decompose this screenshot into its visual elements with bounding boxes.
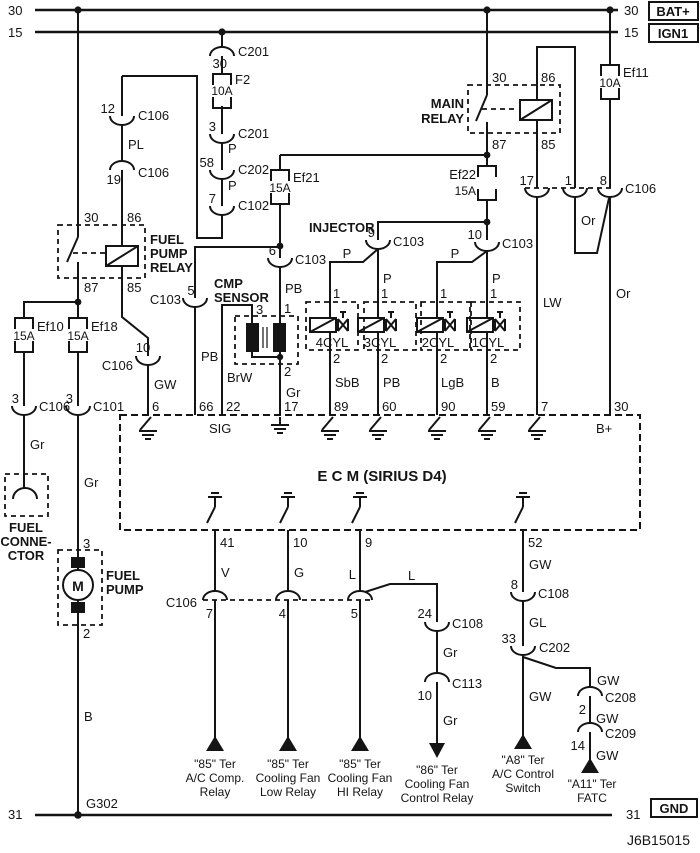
bus-15-label-right: 15 (624, 25, 638, 40)
pin-label: 2 (490, 351, 497, 366)
wire-label: P (228, 178, 237, 193)
wire-label: GW (154, 377, 177, 392)
connector-name: C202 (238, 162, 269, 177)
wire-label: GW (597, 673, 620, 688)
ecm-pin: 9 (365, 535, 372, 550)
ground-point-label: G302 (86, 796, 118, 811)
ecm-bplus-label: B+ (596, 421, 612, 436)
connector-pin: 8 (600, 173, 607, 188)
pin-label: 85 (127, 280, 141, 295)
pin-label: 2 (284, 364, 291, 379)
pin-label: 30 (84, 210, 98, 225)
connector-arc (525, 188, 549, 197)
fuse-ef18-name: Ef18 (91, 319, 118, 334)
connector-pin: 19 (107, 172, 121, 187)
connector-name: C202 (539, 640, 570, 655)
pin-label: 86 (127, 210, 141, 225)
wire-label: V (221, 565, 230, 580)
cmp-coil-bar (273, 323, 286, 352)
fuse-ef22-rating: 15A (455, 184, 476, 198)
connector-name: C106 (102, 358, 133, 373)
fuse-ef11-name: Ef11 (623, 65, 649, 80)
pin-label: 86 (541, 70, 555, 85)
wire-label: Gr (443, 713, 458, 728)
connector-pin: 5 (351, 606, 358, 621)
connector-name: C106 (138, 108, 169, 123)
connector-name: C201 (238, 126, 269, 141)
connector-arc (210, 206, 234, 215)
connector-name: C102 (238, 198, 269, 213)
fuse-ef11-rating: 10A (599, 76, 620, 90)
fuse-ef10-name: Ef10 (37, 319, 64, 334)
fuel-pump-relay-label: PUMP (150, 246, 188, 261)
wire-label: PB (201, 349, 218, 364)
pin-label: 2 (333, 351, 340, 366)
connector-pin: 33 (502, 631, 516, 646)
connector-arc (210, 47, 234, 56)
wire-label: GW (529, 557, 552, 572)
wire-label: Or (616, 286, 631, 301)
main-relay-label: RELAY (421, 111, 464, 126)
cmp-sensor-label: CMP (214, 276, 243, 291)
connector-arc (511, 592, 535, 601)
connector-arc (511, 646, 535, 655)
pin-label: 30 (492, 70, 506, 85)
connector-pin: 2 (579, 702, 586, 717)
bus-lines: 30 15 31 30 15 31 BAT+ IGN1 GND G302 J6B… (8, 2, 698, 848)
bus-31-label-left: 31 (8, 807, 22, 822)
fuse-ef22 (478, 166, 496, 200)
wire-label: PB (383, 375, 400, 390)
fuse-f2-rating: 10A (211, 84, 232, 98)
destination-label: Low Relay (260, 785, 316, 799)
pin-label: 2 (440, 351, 447, 366)
wire-label: P (383, 271, 392, 286)
junction-dot (483, 6, 490, 13)
wire-label: L (349, 567, 356, 582)
junction-dot (218, 28, 225, 35)
connector-name: C103 (150, 292, 181, 307)
destination-label: Cooling Fan (405, 777, 470, 791)
junction-dot (74, 6, 81, 13)
ecm-pin: 10 (293, 535, 307, 550)
connector-name: C101 (93, 399, 124, 414)
ecm-pin: 41 (220, 535, 234, 550)
destination-label: "85" Ter (194, 757, 236, 771)
pin-label: 1 (333, 286, 340, 301)
fuse-ef21-name: Ef21 (293, 170, 320, 185)
injector-solenoids (310, 312, 505, 332)
wire-label: Gr (286, 385, 301, 400)
cmp-core-lines (263, 327, 267, 348)
wire-label: L (408, 568, 415, 583)
connector-name: C106 (625, 181, 656, 196)
ecm-pin: 90 (441, 399, 455, 414)
wire-label: GW (596, 711, 619, 726)
connector-arc (425, 622, 449, 631)
fuel-connector-label: CTOR (8, 548, 45, 563)
injector-label: 3CYL (364, 335, 397, 350)
junction-dot (606, 6, 613, 13)
connector-arc (366, 240, 390, 249)
destination-label: Cooling Fan (328, 771, 393, 785)
connector-name: C209 (605, 726, 636, 741)
destination-label: A/C Control (492, 767, 554, 781)
connector-pin: 30 (213, 56, 227, 71)
pin-label: 2 (83, 626, 90, 641)
connector-arc (136, 356, 160, 365)
wire-label: LW (543, 295, 562, 310)
destination-label: "86" Ter (416, 763, 458, 777)
connector-name: C108 (452, 616, 483, 631)
connector-pin: 6 (269, 243, 276, 258)
ecm-sig-label: SIG (209, 421, 231, 436)
wire-label: B (84, 709, 93, 724)
ecm-pin: 22 (226, 399, 240, 414)
wire-label: PL (128, 137, 144, 152)
destinations: "85" Ter A/C Comp. Relay "85" Ter Coolin… (186, 734, 617, 805)
connector-pin: 14 (571, 738, 585, 753)
connector-pin: 7 (206, 606, 213, 621)
destination-label: Switch (505, 781, 540, 795)
destination-label: HI Relay (337, 785, 383, 799)
junction-dot (74, 811, 82, 819)
wire-label: Gr (30, 437, 45, 452)
connector-pin: 10 (136, 340, 150, 355)
fuse-ef22-name: Ef22 (449, 167, 476, 182)
connector-pin: 58 (200, 155, 214, 170)
wire-label: BrW (227, 370, 253, 385)
fuel-pump-label: PUMP (106, 582, 144, 597)
connector-pin: 10 (468, 227, 482, 242)
connector-arc (578, 687, 602, 696)
fuel-pump-relay-label: FUEL (150, 232, 184, 247)
fuel-connector-symbol (13, 488, 37, 499)
destination-label: "85" Ter (267, 757, 309, 771)
ecm-pin: 89 (334, 399, 348, 414)
wire-label: G (294, 565, 304, 580)
fuel-connector: FUEL CONNE- CTOR (0, 474, 51, 563)
connector-name: C106 (166, 595, 197, 610)
ecm-pin: 59 (491, 399, 505, 414)
destination-label: FATC (577, 791, 607, 805)
wire-label: Gr (84, 475, 99, 490)
fuse-ef10-rating: 15A (13, 329, 34, 343)
ecm-pin: 7 (541, 399, 548, 414)
connector-pin: 7 (209, 191, 216, 206)
wire-label: GW (529, 689, 552, 704)
fuel-connector-label: CONNE- (0, 534, 51, 549)
connector-arc (183, 298, 207, 307)
bus-30-label-right: 30 (624, 3, 638, 18)
off-page-triangle (206, 736, 224, 751)
connector-arc (203, 591, 227, 600)
junction-dot (484, 152, 491, 159)
main-relay-label: MAIN (431, 96, 464, 111)
ecm-pin: 60 (382, 399, 396, 414)
ign1-terminal-label: IGN1 (658, 26, 688, 41)
connector-pin: 3 (12, 391, 19, 406)
ecm-pin: 66 (199, 399, 213, 414)
schematic-canvas: 30 15 31 30 15 31 BAT+ IGN1 GND G302 J6B… (0, 0, 700, 853)
connector-pin: 1 (565, 173, 572, 188)
ecm-pin: 17 (284, 399, 298, 414)
destination-label: "A11" Ter (568, 777, 617, 791)
junction-dot (484, 219, 491, 226)
wire-label: B (491, 375, 500, 390)
connector-name: C103 (502, 236, 533, 251)
diagram-code: J6B15015 (627, 832, 690, 848)
wire-label: P (492, 271, 501, 286)
fuel-connector-label: FUEL (9, 520, 43, 535)
pin-label: 3 (83, 536, 90, 551)
arrow-down (429, 743, 445, 758)
destination-label: A/C Comp. (186, 771, 245, 785)
junction-dot (75, 299, 82, 306)
off-page-triangle (514, 734, 532, 749)
connector-arc (268, 258, 292, 267)
destination-label: "A8" Ter (502, 753, 545, 767)
wire-label: P (343, 246, 352, 261)
wire-label: Or (581, 213, 596, 228)
wiring-diagram: 30 15 31 30 15 31 BAT+ IGN1 GND G302 J6B… (0, 0, 700, 853)
fuse-ef18-rating: 15A (67, 329, 88, 343)
ecm-title: E C M (SIRIUS D4) (317, 468, 446, 485)
connector-arc (475, 242, 499, 251)
gnd-terminal-label: GND (660, 801, 689, 816)
connector-arc (12, 406, 36, 415)
pin-label: 87 (84, 280, 98, 295)
connector-name: C106 (138, 165, 169, 180)
pin-label: 2 (381, 351, 388, 366)
fuel-pump-relay-label: RELAY (150, 260, 193, 275)
connector-name: C103 (393, 234, 424, 249)
ecm-pin: 30 (614, 399, 628, 414)
injector-label: 1CYL (472, 335, 505, 350)
connector-pin: 5 (187, 283, 194, 298)
pin-label: 1 (284, 301, 291, 316)
connector-pin: 3 (209, 119, 216, 134)
wire-label: P (228, 141, 237, 156)
fuel-pump-label: FUEL (106, 568, 140, 583)
injector-label: 4CYL (316, 335, 349, 350)
wire-label: PB (285, 281, 302, 296)
connector-arc (276, 591, 300, 600)
off-page-triangle (279, 736, 297, 751)
main-relay: 30 86 87 85 MAIN RELAY (421, 70, 560, 152)
connector-pin: 10 (418, 688, 432, 703)
motor-brush (71, 602, 85, 613)
pin-label: 85 (541, 137, 555, 152)
connector-arc (425, 673, 449, 682)
connector-arc (348, 591, 372, 600)
wire-label: Gr (443, 645, 458, 660)
pin-label: 1 (381, 286, 388, 301)
wire-label: SbB (335, 375, 360, 390)
injector-title: INJECTOR (309, 220, 375, 235)
motor-letter: M (72, 578, 84, 594)
cmp-coil-bar (246, 323, 259, 352)
connector-arc (563, 188, 587, 197)
connector-pin: 12 (101, 101, 115, 116)
injector-label: 2CYL (422, 335, 455, 350)
destination-label: Cooling Fan (256, 771, 321, 785)
junction-dot (277, 354, 283, 360)
junction-dot (277, 243, 284, 250)
connector-pin: 8 (511, 577, 518, 592)
motor-brush (71, 557, 85, 568)
connector-pin: 24 (418, 606, 432, 621)
destination-label: "85" Ter (339, 757, 381, 771)
ecm-pin: 6 (152, 399, 159, 414)
bat-terminal-label: BAT+ (656, 4, 690, 19)
connector-arc (110, 161, 134, 170)
fuel-pump: M 3 2 FUEL PUMP (58, 536, 144, 641)
bus-30-label-left: 30 (8, 3, 22, 18)
ecm-pin: 52 (528, 535, 542, 550)
bus-31-label-right: 31 (626, 807, 640, 822)
pin-label: 87 (492, 137, 506, 152)
connector-arc (598, 188, 622, 197)
connector-name: C113 (452, 676, 482, 691)
pin-label: 1 (440, 286, 447, 301)
wire-label: GW (596, 748, 619, 763)
ecm: E C M (SIRIUS D4) 6 66 22 17 89 60 90 59… (120, 399, 640, 550)
wire-label: LgB (441, 375, 464, 390)
destination-label: Relay (200, 785, 231, 799)
wire-label: GL (529, 615, 546, 630)
ecm-ground-symbols (139, 425, 546, 439)
connector-name: C208 (605, 690, 636, 705)
fuse-ef21-rating: 15A (269, 181, 290, 195)
connector-pin: 3 (66, 391, 73, 406)
connector-name: C201 (238, 44, 269, 59)
connector-pin: 4 (279, 606, 286, 621)
fuse-f2-name: F2 (235, 72, 250, 87)
pin-label: 1 (490, 286, 497, 301)
connector-name: C103 (295, 252, 326, 267)
ecm-supply-symbols (208, 493, 530, 497)
bus-15-label-left: 15 (8, 25, 22, 40)
pin-label: 3 (256, 302, 263, 317)
connector-pin: 17 (520, 173, 534, 188)
connector-arc (110, 116, 134, 125)
connector-name: C108 (538, 586, 569, 601)
off-page-triangle (351, 736, 369, 751)
destination-label: Control Relay (401, 791, 474, 805)
wire-label: P (451, 246, 460, 261)
